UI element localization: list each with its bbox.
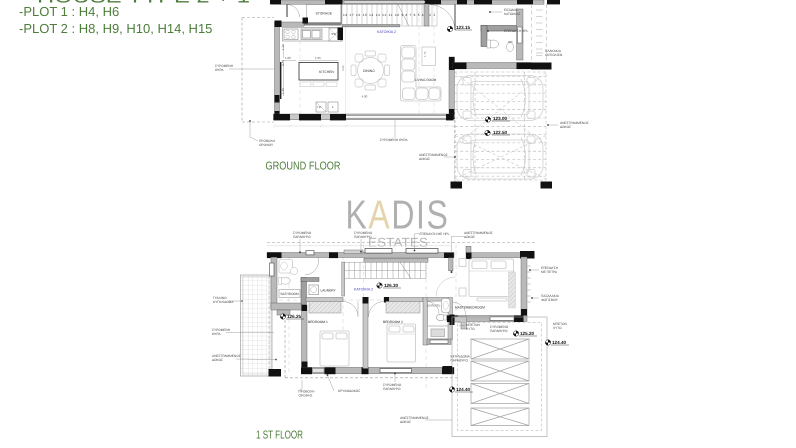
svg-text:123.00: 123.00 [493, 116, 507, 121]
svg-text:ΣΥΡΟΜΕΝΗ ΘΥΡΑ: ΣΥΡΟΜΕΝΗ ΘΥΡΑ [380, 138, 408, 142]
svg-text:ΨΥΓ: ΨΥΓ [331, 32, 337, 36]
svg-text:4.00: 4.00 [362, 95, 368, 99]
svg-text:-PLOT 2 : H8, H9, H10, H14, H1: -PLOT 2 : H8, H9, H10, H14, H15 [19, 21, 212, 36]
svg-text:LAUNDRY: LAUNDRY [321, 289, 337, 293]
svg-text:ΘΥΡΑ: ΘΥΡΑ [212, 332, 221, 336]
svg-text:ΚΥΓΚΛΙΔΩΜΑ: ΚΥΓΚΛΙΔΩΜΑ [213, 300, 234, 304]
svg-text:ΠΑΡΑΘΥΡΟ: ΠΑΡΑΘΥΡΟ [451, 359, 469, 363]
svg-text:126.25: 126.25 [287, 314, 301, 319]
svg-text:LIVING ROOM: LIVING ROOM [415, 78, 437, 82]
svg-text:KITCHEN: KITCHEN [319, 70, 334, 74]
svg-text:1.00: 1.00 [285, 56, 291, 60]
svg-text:ΔΟΚΟΣ: ΔΟΚΟΣ [464, 235, 475, 239]
svg-text:ΕΠΕΝΔΥΣΗ ΜΕ HPL: ΕΠΕΝΔΥΣΗ ΜΕ HPL [420, 232, 450, 236]
svg-text:ΔΟΚΟΣ: ΔΟΚΟΣ [419, 157, 430, 161]
svg-text:18 17 16 15 14 13 12 11 10 9 8: 18 17 16 15 14 13 12 11 10 9 8 7 6 5 4 ·… [343, 13, 435, 17]
svg-text:124.40: 124.40 [552, 340, 566, 345]
svg-text:125.20: 125.20 [520, 331, 534, 336]
svg-text:ΘΥΡΑ: ΘΥΡΑ [215, 68, 224, 72]
svg-text:ΚΑΤΟΙΚΙΑ 2: ΚΑΤΟΙΚΙΑ 2 [354, 288, 373, 292]
svg-text:ΠΑΡΑΘΥΡΟ: ΠΑΡΑΘΥΡΟ [354, 235, 372, 239]
svg-text:ΦΩΤΙΣΜΟΥ: ΦΩΤΙΣΜΟΥ [541, 298, 559, 302]
svg-text:126.30: 126.30 [384, 283, 398, 288]
svg-text:ΕΠΕΝΔΥΣΗ HPL: ΕΠΕΝΔΥΣΗ HPL [504, 29, 528, 33]
svg-text:ΧΥΤΟ: ΧΥΤΟ [466, 327, 475, 331]
svg-text:BEDROOM 2: BEDROOM 2 [383, 320, 403, 324]
svg-text:MASTERBEDROOM: MASTERBEDROOM [455, 306, 485, 310]
svg-text:1.75: 1.75 [423, 51, 427, 57]
svg-text:123.15: 123.15 [456, 25, 470, 30]
svg-text:0.45: 0.45 [281, 60, 285, 66]
svg-text:124.40: 124.40 [456, 387, 470, 392]
svg-text:GROUND FLOOR: GROUND FLOOR [266, 161, 341, 173]
svg-text:ΔΟΚΟΣ: ΔΟΚΟΣ [560, 125, 571, 129]
svg-text:ΚΡΥΦΟΔΟΚΟΣ: ΚΡΥΦΟΔΟΚΟΣ [338, 389, 360, 393]
svg-text:ΠΑΡΑΘΥΡΟ: ΠΑΡΑΘΥΡΟ [490, 329, 508, 333]
svg-text:ΚΑΤΟΙΚΙΑΣ: ΚΑΤΟΙΚΙΑΣ [504, 12, 520, 16]
svg-text:ΚΑΤΟΙΚΙΑ 2: ΚΑΤΟΙΚΙΑ 2 [377, 30, 396, 34]
svg-text:1.25: 1.25 [281, 88, 285, 94]
svg-text:4.40: 4.40 [341, 65, 345, 71]
svg-text:STORAGE: STORAGE [316, 12, 333, 16]
svg-text:1.95: 1.95 [315, 56, 321, 60]
svg-text:ΟΡΟΦΗΣ: ΟΡΟΦΗΣ [299, 394, 313, 398]
svg-text:ENSUITE: ENSUITE [428, 304, 441, 308]
svg-text:F: F [332, 105, 334, 109]
svg-text:ΠΛ: ΠΛ [318, 105, 322, 109]
svg-text:WC: WC [508, 40, 513, 44]
svg-text:BEDROOM 1: BEDROOM 1 [308, 320, 328, 324]
svg-text:ΜΕ ΠΕΤΡΑ: ΜΕ ΠΕΤΡΑ [541, 270, 558, 274]
svg-text:ΟΡΟΦΟΥ: ΟΡΟΦΟΥ [259, 143, 274, 147]
svg-text:BATHROOM: BATHROOM [281, 292, 300, 296]
svg-text:ΠΑΡΑΘΥΡΟ: ΠΑΡΑΘΥΡΟ [383, 387, 401, 391]
svg-text:ΧΥΤΟ: ΧΥΤΟ [553, 326, 562, 330]
svg-text:ΠΑΡΑΘΥΡΟ: ΠΑΡΑΘΥΡΟ [293, 235, 311, 239]
svg-text:1.20: 1.20 [281, 44, 285, 50]
svg-text:ΔΟΚΟΣ: ΔΟΚΟΣ [400, 420, 411, 424]
svg-text:DINING: DINING [363, 69, 375, 73]
svg-text:1 ST FLOOR: 1 ST FLOOR [256, 430, 303, 442]
svg-text:ΔΟΚΟΣ: ΔΟΚΟΣ [212, 358, 223, 362]
svg-text:122.50: 122.50 [493, 130, 507, 135]
svg-text:-PLOT 1 : H4, H6: -PLOT 1 : H4, H6 [19, 4, 119, 19]
svg-text:ΑΝΤΙΟΛΙΣΘ.: ΑΝΤΙΟΛΙΣΘ. [545, 53, 563, 57]
